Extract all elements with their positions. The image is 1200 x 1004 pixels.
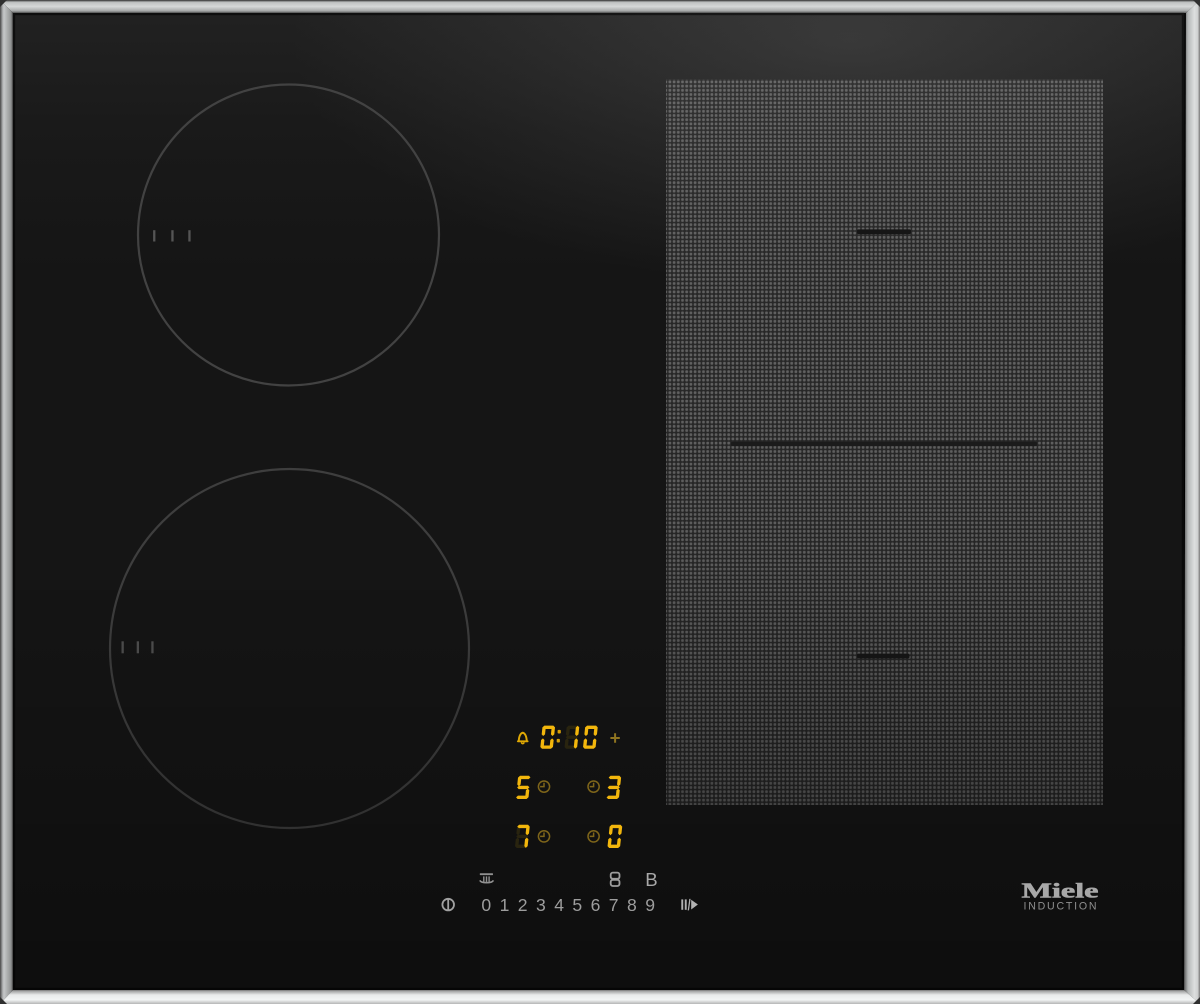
svg-text:9: 9 (645, 895, 655, 915)
svg-text:6: 6 (591, 895, 601, 915)
svg-text:5: 5 (572, 895, 582, 915)
svg-text:4: 4 (554, 895, 564, 915)
svg-text:7: 7 (609, 895, 619, 915)
svg-text:1: 1 (500, 895, 510, 915)
svg-text:Miele: Miele (1022, 879, 1099, 903)
svg-text:0: 0 (481, 895, 491, 915)
svg-text:2: 2 (518, 895, 528, 915)
svg-text:B: B (645, 869, 657, 890)
svg-text:3: 3 (536, 895, 546, 915)
svg-text:INDUCTION: INDUCTION (1024, 901, 1097, 913)
svg-text:8: 8 (627, 895, 637, 915)
